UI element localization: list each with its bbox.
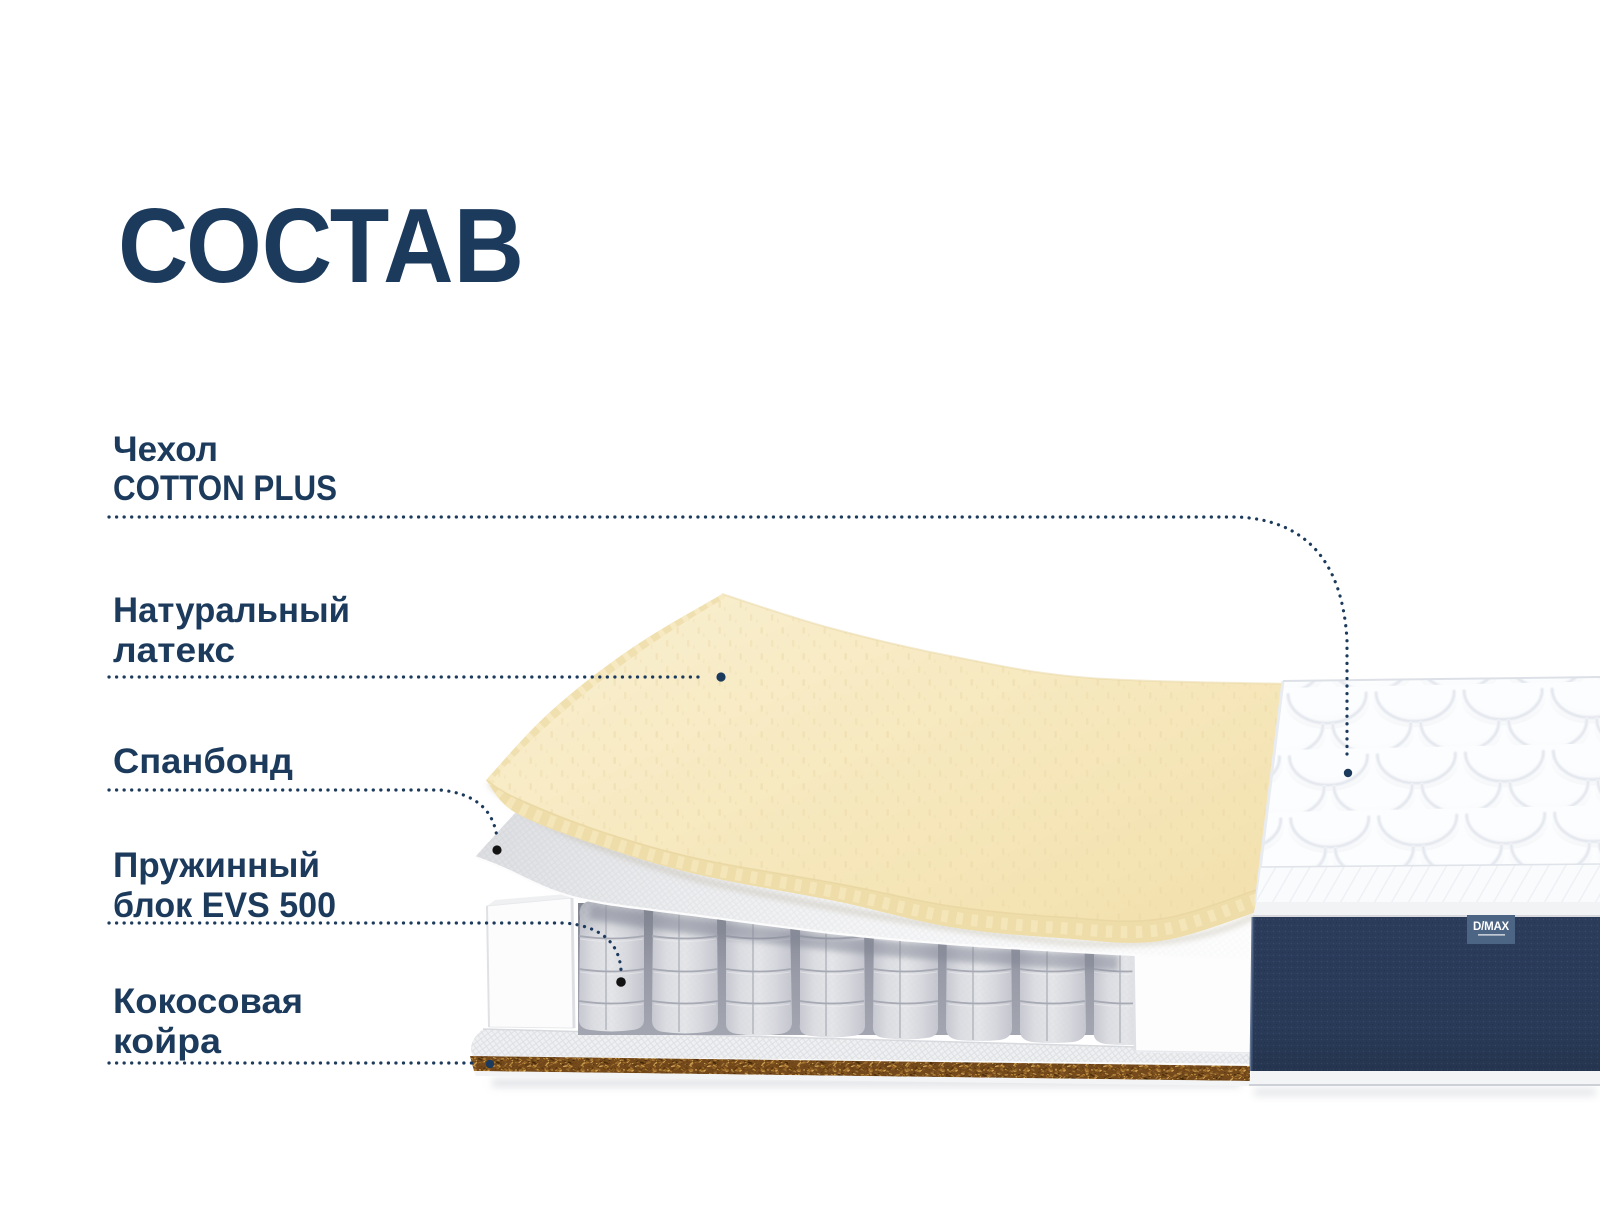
svg-text:латекс: латекс (113, 631, 235, 670)
svg-text:COTTON PLUS: COTTON PLUS (113, 469, 337, 508)
svg-text:Натуральный: Натуральный (113, 591, 350, 630)
svg-text:Чехол: Чехол (113, 430, 218, 469)
svg-text:СОСТАВ: СОСТАВ (118, 187, 524, 305)
svg-text:койра: койра (113, 1022, 222, 1061)
svg-text:блок EVS 500: блок EVS 500 (113, 886, 336, 925)
svg-text:Кокосовая: Кокосовая (113, 982, 303, 1021)
svg-text:D/MAX: D/MAX (1473, 921, 1510, 933)
svg-text:Спанбонд: Спанбонд (113, 742, 293, 781)
svg-text:Пружинный: Пружинный (113, 846, 320, 885)
